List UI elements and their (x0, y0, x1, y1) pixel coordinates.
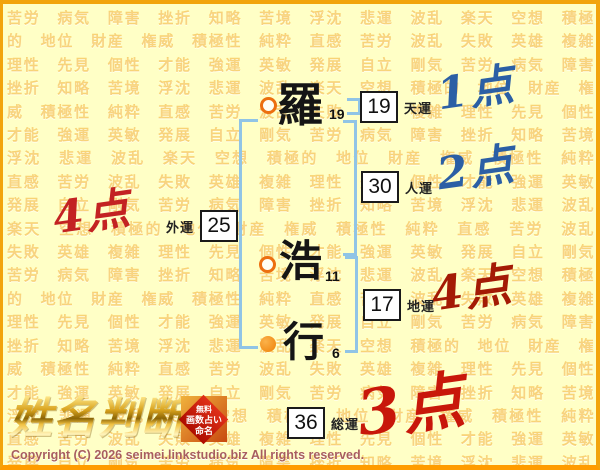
name-char-1-strokes: 19 (329, 106, 345, 122)
name-char-3: 行 (283, 322, 324, 363)
chiun-bracket (345, 256, 358, 353)
jinun-label: 人運 (405, 178, 433, 197)
tenun-label: 天運 (404, 98, 432, 117)
score-jinun: 2点 (434, 143, 518, 198)
name-char-3-strokes: 6 (332, 345, 340, 361)
tenun-box: 19 天運 (360, 91, 432, 123)
copyright-text: Copyright (C) 2026 seimei.linkstudio.biz… (11, 448, 364, 462)
name-char-2-strokes: 11 (325, 268, 340, 284)
stamp-line2: 画数占い (186, 415, 222, 426)
free-kakusuuranai-stamp[interactable]: 無料 画数占い 命名 (181, 396, 227, 442)
souun-box: 36 総運 (287, 407, 359, 439)
seimei-handan-result-page: 苦労 病気 障害 挫折 知略 苦境 浮沈 悲運 波乱 楽天 空想 積極的 地位 … (0, 0, 600, 470)
gaiun-value: 25 (200, 210, 238, 242)
jinun-bracket (343, 120, 357, 256)
chiun-label: 地運 (407, 296, 435, 315)
gaiun-box: 外運 25 (166, 210, 238, 242)
stamp-line1: 無料 (196, 405, 212, 415)
name-char-2: 浩 (279, 241, 322, 284)
tenun-value: 19 (360, 91, 398, 123)
name-char-1: 羅 (277, 82, 323, 128)
score-gaiun: 4点 (50, 187, 134, 242)
gaiun-label: 外運 (166, 217, 194, 236)
stamp-text: 無料 画数占い 命名 (181, 396, 227, 446)
jinun-box: 30 人運 (361, 171, 433, 203)
filled-circle-icon (260, 336, 276, 352)
score-chiun: 4点 (428, 261, 516, 318)
souun-label: 総運 (331, 414, 359, 433)
site-logo[interactable]: 姓名判断 (9, 396, 185, 443)
chiun-value: 17 (363, 289, 401, 321)
tenun-bracket (347, 98, 361, 115)
score-souun: 3点 (353, 369, 470, 446)
hollow-circle-icon (259, 256, 276, 273)
souun-value: 36 (287, 407, 325, 439)
hollow-circle-icon (260, 97, 277, 114)
score-tenun: 1点 (434, 63, 518, 118)
jinun-value: 30 (361, 171, 399, 203)
gaiun-bracket (239, 119, 258, 349)
chiun-box: 17 地運 (363, 289, 435, 321)
stamp-line3: 命名 (195, 426, 213, 437)
